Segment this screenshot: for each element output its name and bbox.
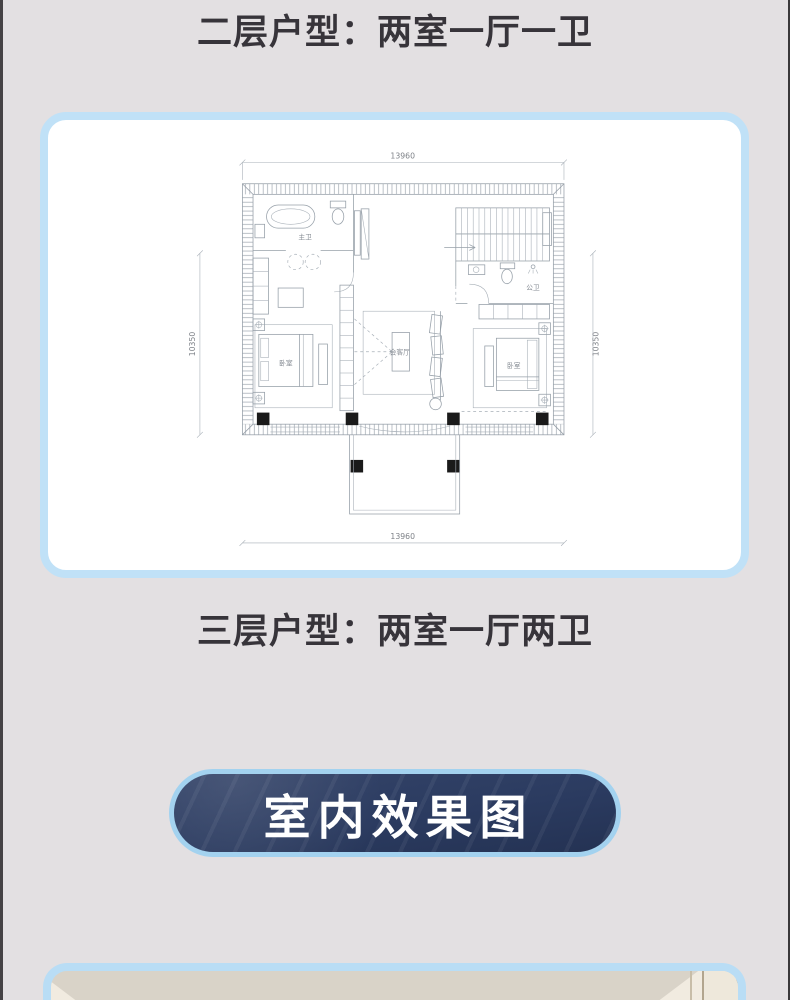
dim-top-label: 13960	[390, 152, 415, 161]
living-room: 会客厅	[354, 211, 443, 410]
toilet-icon	[330, 201, 345, 224]
closet-strip-left	[253, 258, 268, 314]
side-table-icon	[430, 398, 442, 410]
page-left-edge	[0, 0, 3, 1000]
bedroom-right-label: 卧室	[507, 361, 521, 370]
basin-icon	[305, 254, 320, 269]
bench-icon	[485, 346, 494, 387]
desk-icon	[278, 288, 303, 307]
tall-cabinet-icon	[361, 209, 369, 259]
closet-strip-right	[479, 304, 549, 318]
shower-icon	[528, 265, 538, 274]
ceiling-beam	[51, 971, 205, 1000]
interior-render-banner[interactable]: 室内效果图	[169, 769, 621, 857]
terrace	[350, 435, 460, 514]
floor2-title: 二层户型：两室一厅一卫	[0, 4, 790, 55]
living-label: 会客厅	[390, 348, 411, 357]
basin-icon	[288, 254, 303, 269]
closet-strip-center	[340, 285, 354, 411]
listing-page: 二层户型：两室一厅一卫	[0, 0, 790, 1000]
floor3-title: 三层户型：两室一厅两卫	[0, 603, 790, 654]
bench-icon	[319, 344, 328, 385]
nightstand-icon	[539, 394, 551, 406]
interior-render-banner-label: 室内效果图	[257, 779, 534, 848]
wall-niche	[543, 213, 552, 246]
dim-left-label: 10350	[188, 332, 197, 357]
outer-walls	[242, 184, 564, 435]
floor-plan-drawing: 13960 13960 10350 10350	[48, 120, 741, 570]
wall-panel	[702, 971, 738, 1000]
tv-panel-icon	[354, 211, 360, 255]
bathtub-icon	[267, 205, 315, 228]
dimension-left: 10350	[188, 250, 203, 437]
toilet-icon	[500, 263, 514, 284]
bedroom-left: 卧室	[253, 319, 332, 408]
stairs	[361, 208, 551, 261]
bedroom-left-label: 卧室	[279, 358, 293, 367]
master-bath-label: 主卫	[298, 233, 312, 242]
second-bath-label: 公卫	[526, 284, 540, 292]
sink-icon	[468, 265, 484, 275]
dim-right-label: 10350	[592, 332, 601, 357]
wall-panel-line	[690, 971, 692, 1000]
interior-ceiling-photo	[51, 971, 738, 1000]
columns	[257, 413, 549, 473]
stairs-direction-arrow	[444, 245, 475, 251]
floor-plan-card: 13960 13960 10350 10350	[40, 112, 749, 578]
interior-photo-card	[43, 963, 746, 1000]
dimension-bottom: 13960	[240, 532, 567, 546]
sofa-icon	[429, 311, 443, 400]
second-bathroom: 公卫	[456, 261, 554, 303]
dim-bottom-label: 13960	[390, 532, 415, 541]
dimension-top: 13960	[240, 152, 567, 180]
dimension-right: 10350	[590, 250, 601, 437]
cabinet-icon	[255, 224, 265, 238]
bedroom-right: 卧室	[462, 323, 551, 412]
